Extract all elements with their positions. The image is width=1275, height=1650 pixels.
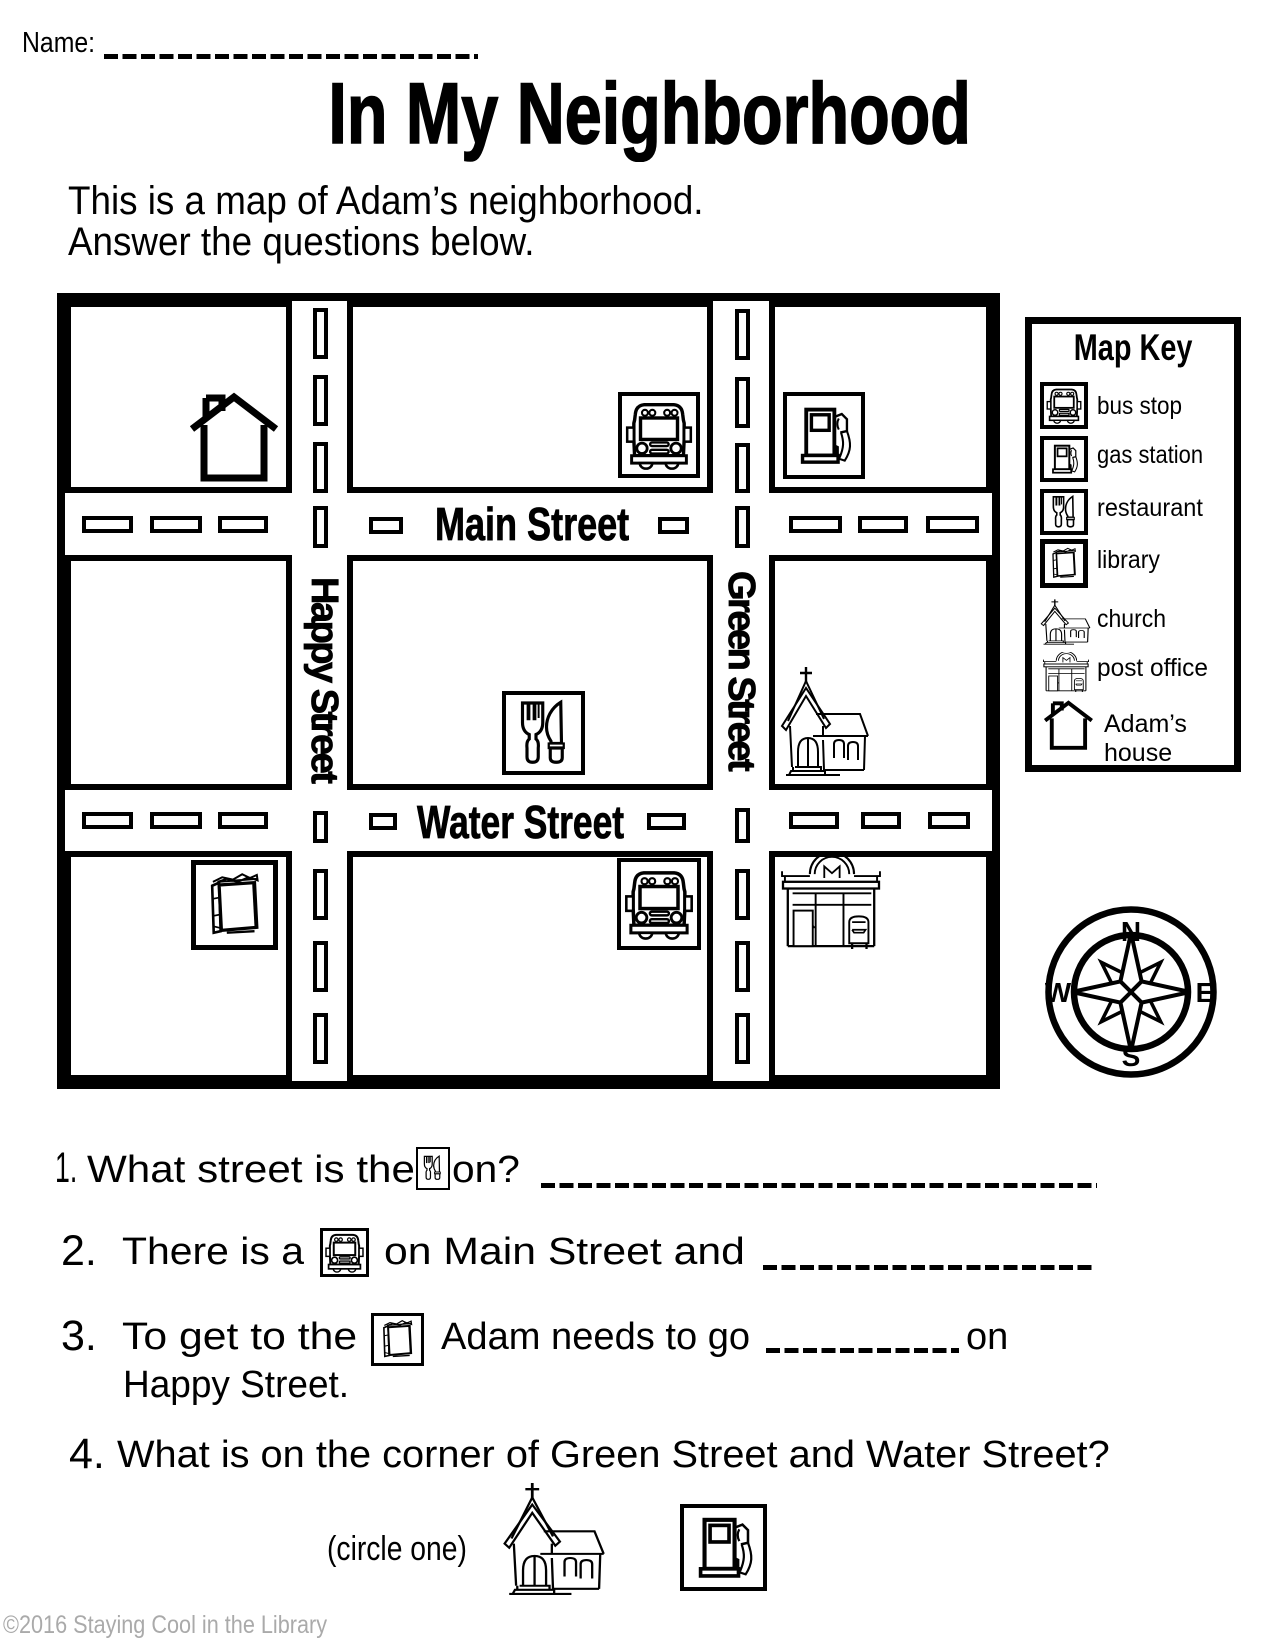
svg-text:W: W [1045, 977, 1072, 1008]
svg-text:N: N [1121, 916, 1141, 947]
svg-text:E: E [1196, 977, 1215, 1008]
svg-text:S: S [1122, 1041, 1141, 1072]
